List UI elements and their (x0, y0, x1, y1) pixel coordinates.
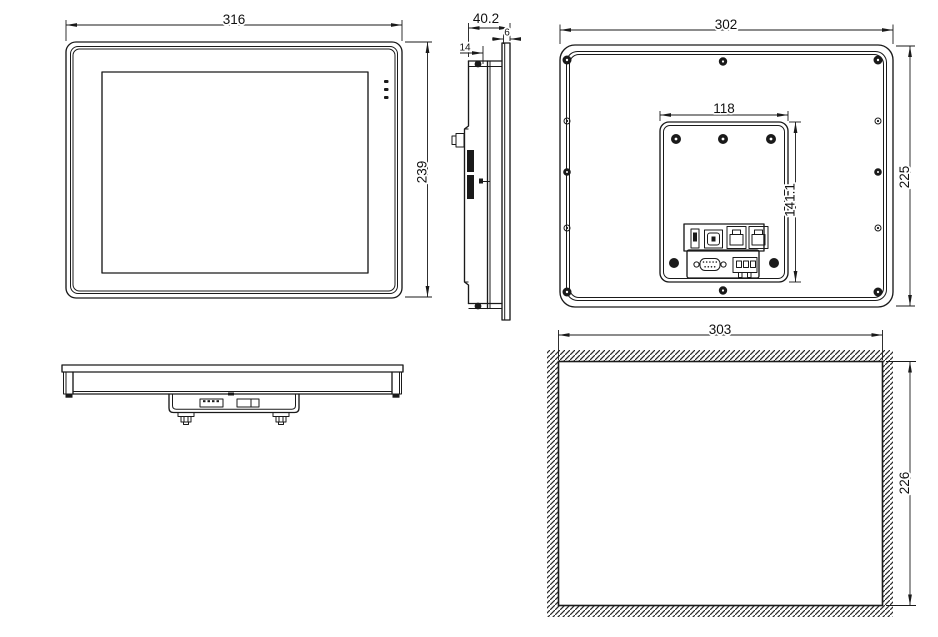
side-view: 40.2 6 14 (452, 11, 521, 320)
dim-label-cutout-height: 226 (897, 472, 912, 495)
bottom-rear-module (169, 393, 299, 425)
case-screws (563, 56, 883, 297)
side-port-slot (467, 175, 474, 199)
dim-label-front-height: 239 (415, 161, 430, 184)
side-port-slot (467, 150, 474, 172)
rear-io-module (660, 122, 788, 282)
dim-label-side-bezel: 6 (504, 28, 510, 39)
usb-a-port-icon (691, 229, 699, 248)
dimension-back-height: 225 (896, 46, 915, 306)
screw-icon (479, 179, 483, 184)
bottom-connector-slot (237, 399, 259, 407)
screw-icon (475, 61, 482, 68)
serial-db9-port-icon (694, 259, 726, 271)
dimension-front-width: 316 (66, 12, 402, 41)
corner-foot (66, 395, 73, 398)
side-terminal-connector (456, 134, 464, 148)
usb-b-port-icon (705, 230, 723, 248)
dim-label-side-depth: 40.2 (473, 11, 499, 26)
panel-hatch-frame (547, 350, 893, 617)
dim-label-module-height: 141.1 (783, 183, 798, 217)
dimension-front-height: 239 (405, 42, 432, 297)
display-screen (102, 72, 368, 273)
dim-label-side-rear-depth: 14 (459, 43, 471, 54)
ethernet-port-icon (749, 227, 768, 249)
mounting-foot (273, 413, 289, 425)
dimension-side-bezel: 6 (492, 28, 521, 45)
dimension-module-width: 118 (660, 101, 788, 121)
bottom-bezel-edge (62, 365, 403, 372)
dimension-module-height: 141.1 (783, 122, 802, 282)
corner-foot (393, 395, 400, 398)
dim-label-module-width: 118 (713, 101, 735, 116)
screw-icon (475, 303, 482, 310)
dim-label-cutout-width: 303 (709, 322, 732, 337)
back-view: 302 225 118 141.1 (560, 17, 915, 307)
side-bezel (502, 43, 510, 320)
dim-label-front-width: 316 (223, 12, 246, 27)
bottom-connector-slot (200, 399, 223, 407)
panel-cutout-view: 303 226 (547, 322, 916, 617)
drawing-canvas: 316 239 (0, 0, 938, 637)
dimension-back-width: 302 (560, 17, 893, 44)
ethernet-port-icon (727, 227, 746, 249)
bottom-view (62, 365, 403, 425)
dim-label-back-height: 225 (897, 166, 912, 189)
mounting-foot (178, 413, 194, 425)
power-terminal-icon (733, 258, 757, 278)
cutout-opening (559, 362, 883, 606)
front-view: 316 239 (66, 12, 432, 298)
technical-drawing: 316 239 (0, 0, 938, 637)
dim-label-back-width: 302 (715, 17, 738, 32)
led-indicators-icon (384, 80, 389, 99)
